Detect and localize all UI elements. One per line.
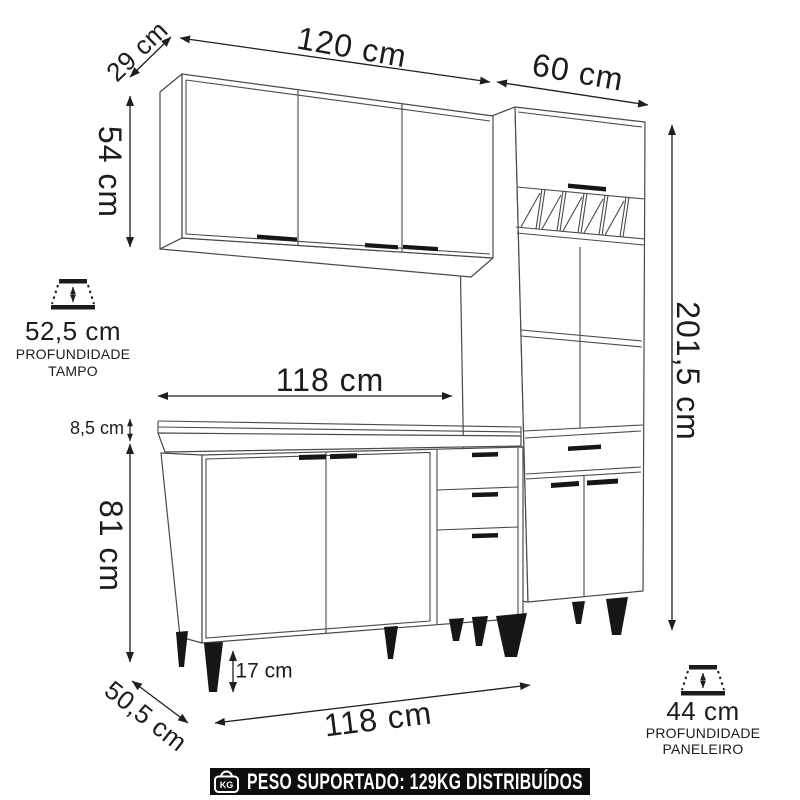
base-cabinet-leg	[384, 626, 398, 659]
label-tall-cabinet-width: 60 cm	[530, 46, 627, 97]
base-cabinet-leg	[496, 613, 527, 657]
base-drawer-handle	[472, 492, 498, 497]
depth-icon-paneleiro	[681, 665, 725, 696]
label-countertop-depth-caption-1: PROFUNDIDADE	[16, 346, 130, 362]
base-cabinet-leg	[176, 631, 188, 667]
tall-cabinet-leg	[606, 597, 628, 635]
support-banner: KG PESO SUPORTADO: 129KG DISTRIBUÍDOS	[210, 768, 590, 795]
depth-icon-tampo	[51, 279, 95, 310]
base-drawer-handle	[472, 533, 498, 538]
base-cabinet-leg	[449, 618, 464, 641]
label-countertop-depth: 52,5 cm	[25, 316, 121, 346]
label-tall-cabinet-depth: 44 cm	[666, 696, 739, 726]
label-wall-cabinet-depth: 29 cm	[100, 15, 174, 88]
label-countertop-depth-caption-2: TAMPO	[48, 363, 98, 379]
base-cabinet-leg	[472, 616, 488, 646]
label-wall-cabinet-width: 120 cm	[294, 20, 410, 75]
tall-cabinet-leg	[572, 601, 585, 624]
support-banner-text: PESO SUPORTADO: 129KG DISTRIBUÍDOS	[247, 769, 583, 794]
base-door-handle	[299, 454, 326, 460]
label-tall-cabinet-depth-caption-2: PANELEIRO	[663, 741, 744, 757]
label-tall-cabinet-depth-caption-1: PROFUNDIDADE	[646, 725, 760, 741]
label-base-cabinet-height: 81 cm	[93, 500, 129, 592]
label-base-width-bottom: 118 cm	[322, 695, 434, 744]
base-door-handle	[330, 453, 357, 459]
base-cabinet	[158, 421, 527, 692]
label-wall-cabinet-height: 54 cm	[92, 126, 128, 218]
diagram-canvas: 29 cm 120 cm 60 cm 54 cm 52,5 cm PROFUND…	[0, 0, 800, 800]
base-cabinet-leg	[204, 642, 223, 692]
wall-cabinet	[160, 74, 493, 277]
furniture-dimensions-diagram: 29 cm 120 cm 60 cm 54 cm 52,5 cm PROFUND…	[0, 0, 800, 800]
weight-icon-label: KG	[220, 780, 234, 790]
label-countertop-thickness: 8,5 cm	[70, 418, 124, 438]
label-base-width-top: 118 cm	[276, 362, 385, 398]
label-feet-height: 17 cm	[235, 660, 292, 683]
label-tall-cabinet-height: 201,5 cm	[670, 301, 706, 441]
base-drawer-handle	[472, 452, 498, 457]
